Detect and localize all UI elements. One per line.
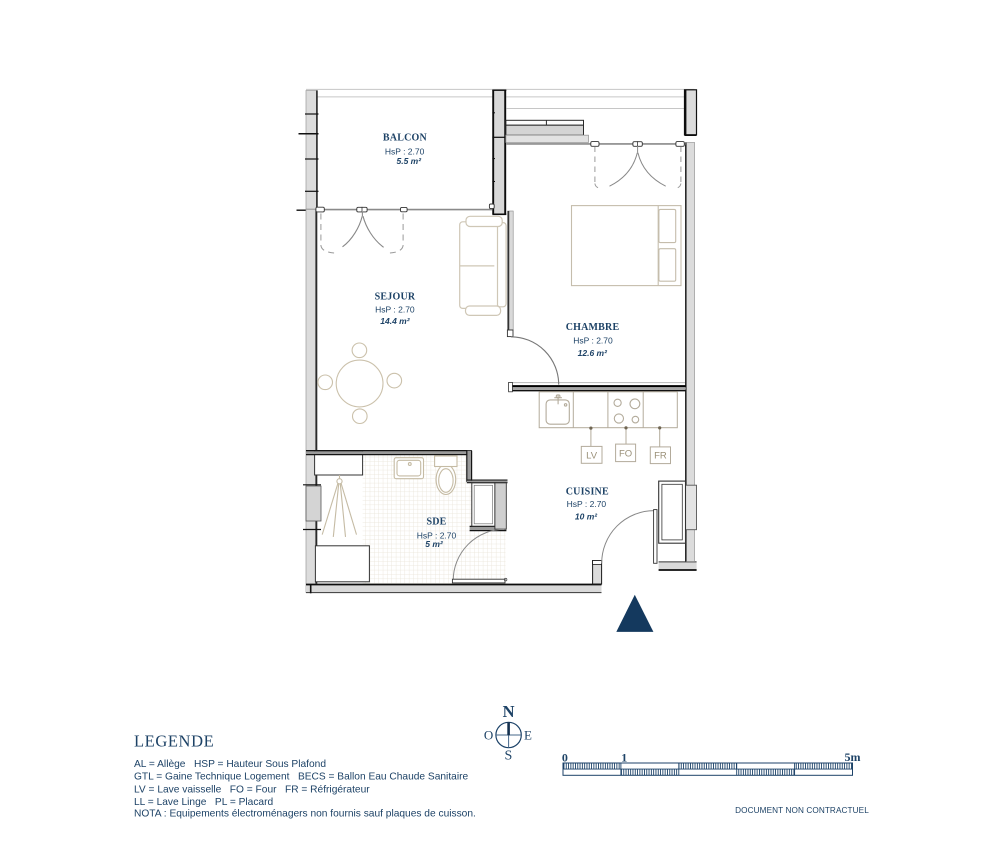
- svg-text:10 m²: 10 m²: [575, 512, 598, 522]
- svg-text:DOCUMENT NON CONTRACTUEL: DOCUMENT NON CONTRACTUEL: [735, 806, 869, 815]
- svg-text:LEGENDE: LEGENDE: [134, 732, 214, 751]
- svg-text:14.4 m²: 14.4 m²: [380, 316, 410, 326]
- svg-text:HsP : 2.70: HsP : 2.70: [567, 499, 607, 509]
- svg-text:5m: 5m: [845, 750, 861, 764]
- svg-text:N: N: [503, 702, 515, 721]
- svg-text:LL = Lave Linge PL = Placard: LL = Lave Linge PL = Placard: [134, 797, 273, 808]
- svg-text:AL = Allège HSP = Hauteur So: AL = Allège HSP = Hauteur Sous Plafond: [134, 759, 326, 770]
- svg-text:5 m²: 5 m²: [425, 539, 444, 549]
- svg-text:S: S: [505, 749, 513, 764]
- svg-text:GTL = Gaine Technique Logement: GTL = Gaine Technique Logement BECS = Ba…: [134, 772, 468, 783]
- svg-text:5.5 m²: 5.5 m²: [397, 156, 423, 166]
- svg-text:HsP : 2.70: HsP : 2.70: [573, 336, 613, 346]
- svg-text:FO: FO: [619, 448, 632, 459]
- svg-text:HsP : 2.70: HsP : 2.70: [375, 305, 415, 315]
- svg-text:BALCON: BALCON: [383, 133, 428, 144]
- svg-text:E: E: [524, 727, 532, 742]
- svg-text:HsP : 2.70: HsP : 2.70: [385, 146, 425, 156]
- svg-text:12.6 m²: 12.6 m²: [578, 348, 608, 358]
- svg-text:LV: LV: [586, 451, 598, 462]
- svg-text:LV = Lave vaisselle FO = Fou: LV = Lave vaisselle FO = Four FR = Réfri…: [134, 784, 370, 795]
- svg-text:SDE: SDE: [426, 517, 446, 528]
- svg-text:CUISINE: CUISINE: [566, 487, 609, 498]
- svg-text:CHAMBRE: CHAMBRE: [566, 322, 620, 333]
- svg-text:SEJOUR: SEJOUR: [375, 292, 416, 303]
- svg-text:0: 0: [562, 751, 568, 765]
- svg-text:NOTA : Equipements électroména: NOTA : Equipements électroménagers non f…: [134, 808, 476, 819]
- svg-text:1: 1: [621, 751, 627, 765]
- svg-text:FR: FR: [654, 451, 667, 462]
- svg-text:O: O: [484, 727, 493, 742]
